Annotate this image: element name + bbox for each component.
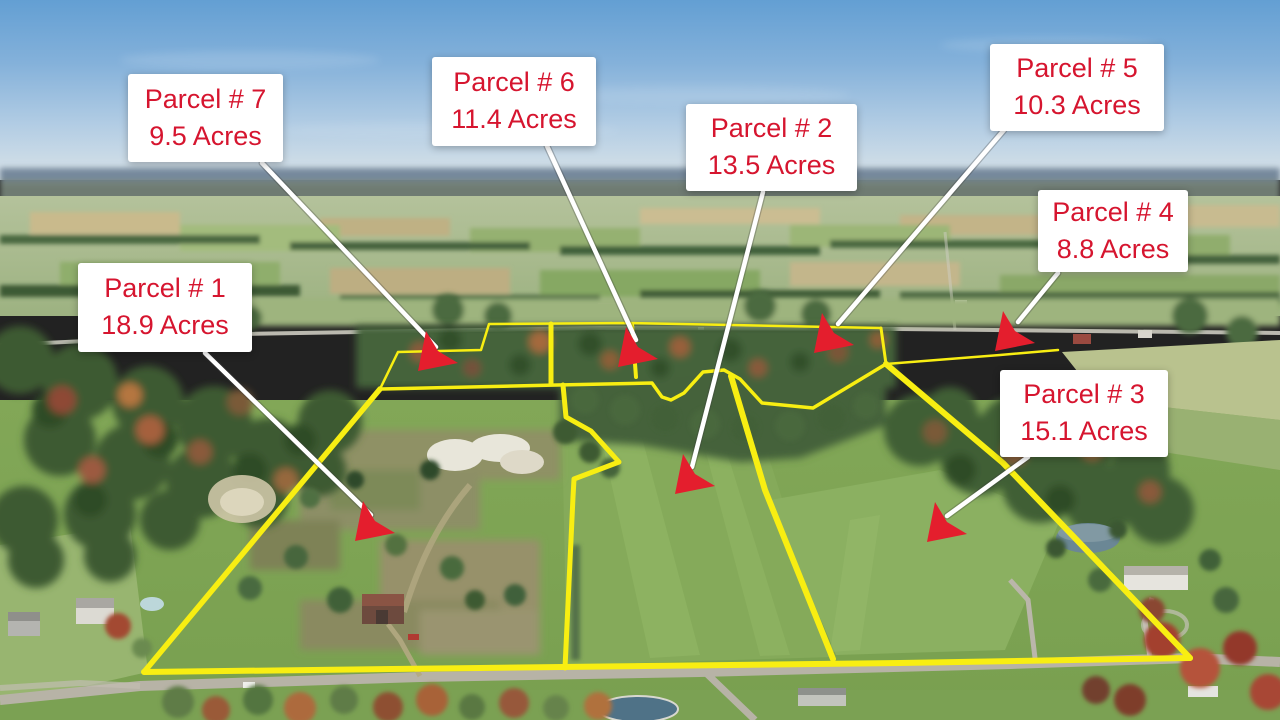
parcel-3-label: Parcel # 3 15.1 Acres — [1000, 370, 1168, 457]
parcel-2-acres: 13.5 Acres — [708, 151, 836, 181]
parcel-3-acres: 15.1 Acres — [1020, 417, 1148, 447]
parcel-4-name: Parcel # 4 — [1052, 198, 1174, 228]
parcel-3-name: Parcel # 3 — [1023, 380, 1145, 410]
white-house-right — [1124, 566, 1188, 590]
parcel-7-acres: 9.5 Acres — [149, 122, 262, 152]
parcel-5-name: Parcel # 5 — [1016, 54, 1138, 84]
parcel-6-acres: 11.4 Acres — [451, 105, 577, 135]
parcel-1-name: Parcel # 1 — [104, 274, 226, 304]
parcel-2-name: Parcel # 2 — [711, 114, 833, 144]
aerial-parcel-photo: Parcel # 1 18.9 Acres Parcel # 2 13.5 Ac… — [0, 0, 1280, 720]
parcel-6-label: Parcel # 6 11.4 Acres — [432, 57, 596, 146]
parcel-5-acres: 10.3 Acres — [1013, 91, 1141, 121]
parcel-4-acres: 8.8 Acres — [1057, 235, 1170, 265]
parcel-6-name: Parcel # 6 — [453, 68, 575, 98]
gray-barn-left — [8, 612, 40, 636]
parcel-7-label: Parcel # 7 9.5 Acres — [128, 74, 283, 162]
parcel-7-name: Parcel # 7 — [145, 85, 267, 115]
parcel-2-label: Parcel # 2 13.5 Acres — [686, 104, 857, 191]
boundary-back-east — [886, 350, 1058, 364]
red-barn-parcel1 — [362, 594, 404, 624]
red-car — [408, 634, 419, 640]
parcel-1-acres: 18.9 Acres — [101, 311, 229, 341]
pool — [140, 597, 164, 611]
parcel-1-label: Parcel # 1 18.9 Acres — [78, 263, 252, 352]
parcel-4-label: Parcel # 4 8.8 Acres — [1038, 190, 1188, 272]
parcel-5-label: Parcel # 5 10.3 Acres — [990, 44, 1164, 131]
building-bottom-center — [798, 688, 846, 706]
